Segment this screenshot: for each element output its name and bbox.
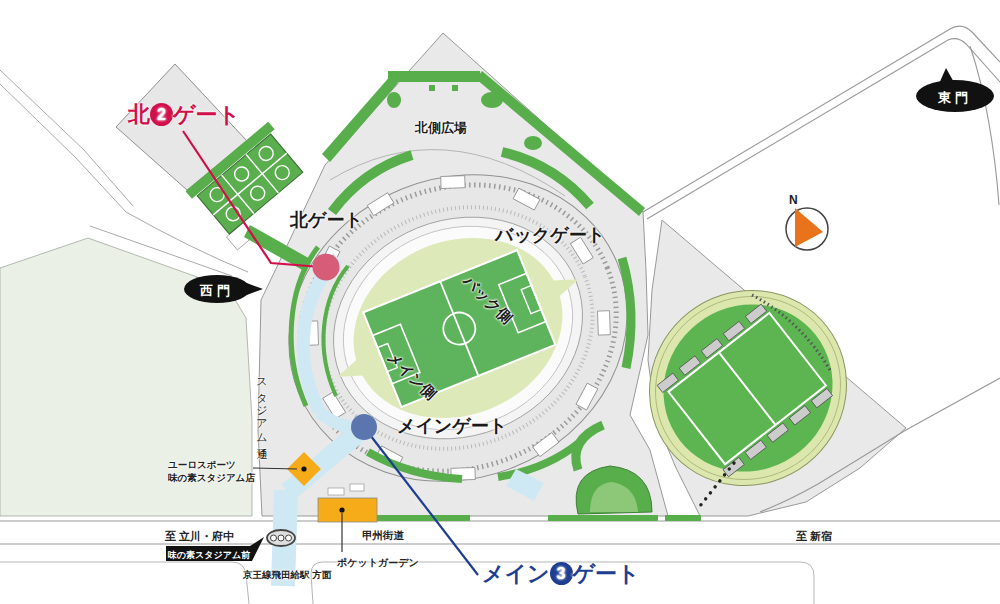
main3-number-badge: 3 — [550, 562, 573, 585]
pocket-garden-rect — [318, 498, 377, 522]
main3-gate-marker — [351, 414, 377, 440]
north-plaza-label: 北側広場 — [415, 119, 467, 137]
back-gate-label: バックゲート — [495, 223, 605, 247]
pocket-garden-dot — [339, 507, 344, 512]
main3-prefix: メイン — [482, 561, 550, 586]
main3-suffix: ゲート — [573, 561, 640, 586]
stadium-map: 北2ゲート メイン3ゲート 北ゲート バックゲート メインゲート 北側広場 バッ… — [0, 0, 1000, 604]
north2-suffix: ゲート — [173, 102, 240, 127]
to-tachikawa-label: 至 立川・府中 — [165, 529, 234, 544]
north2-prefix: 北 — [128, 102, 150, 127]
main-gate-label: メインゲート — [397, 414, 507, 438]
pocket-garden-label: ポケットガーデン — [337, 556, 419, 570]
koshu-kaido-label: 甲州街道 — [362, 529, 404, 543]
east-gate-label: 東門 — [922, 89, 988, 107]
north2-gate-marker — [313, 254, 340, 281]
compass-n-label: N — [789, 193, 798, 207]
north2-number-badge: 2 — [150, 103, 173, 126]
euro-sports-dot — [301, 466, 306, 471]
main3-gate-label: メイン3ゲート — [482, 559, 640, 589]
euro-sports-line2: 味の素スタジアム店 — [168, 471, 255, 484]
bus-stop-label: 味の素スタジアム前 — [167, 549, 251, 562]
compass — [786, 208, 828, 250]
station-marker — [267, 530, 295, 546]
euro-sports-line1: ユーロスポーツ — [168, 458, 255, 471]
euro-sports-label: ユーロスポーツ 味の素スタジアム店 — [168, 458, 255, 484]
to-shinjuku-label: 至 新宿 — [796, 529, 832, 544]
north2-gate-label: 北2ゲート — [128, 100, 240, 130]
west-gate-label: 西門 — [186, 282, 248, 300]
north-gate-label: 北ゲート — [290, 208, 363, 232]
stadium-street-label: スタジアム通り — [254, 371, 269, 453]
keio-station-label: 京王線飛田給駅 方面 — [243, 569, 331, 582]
